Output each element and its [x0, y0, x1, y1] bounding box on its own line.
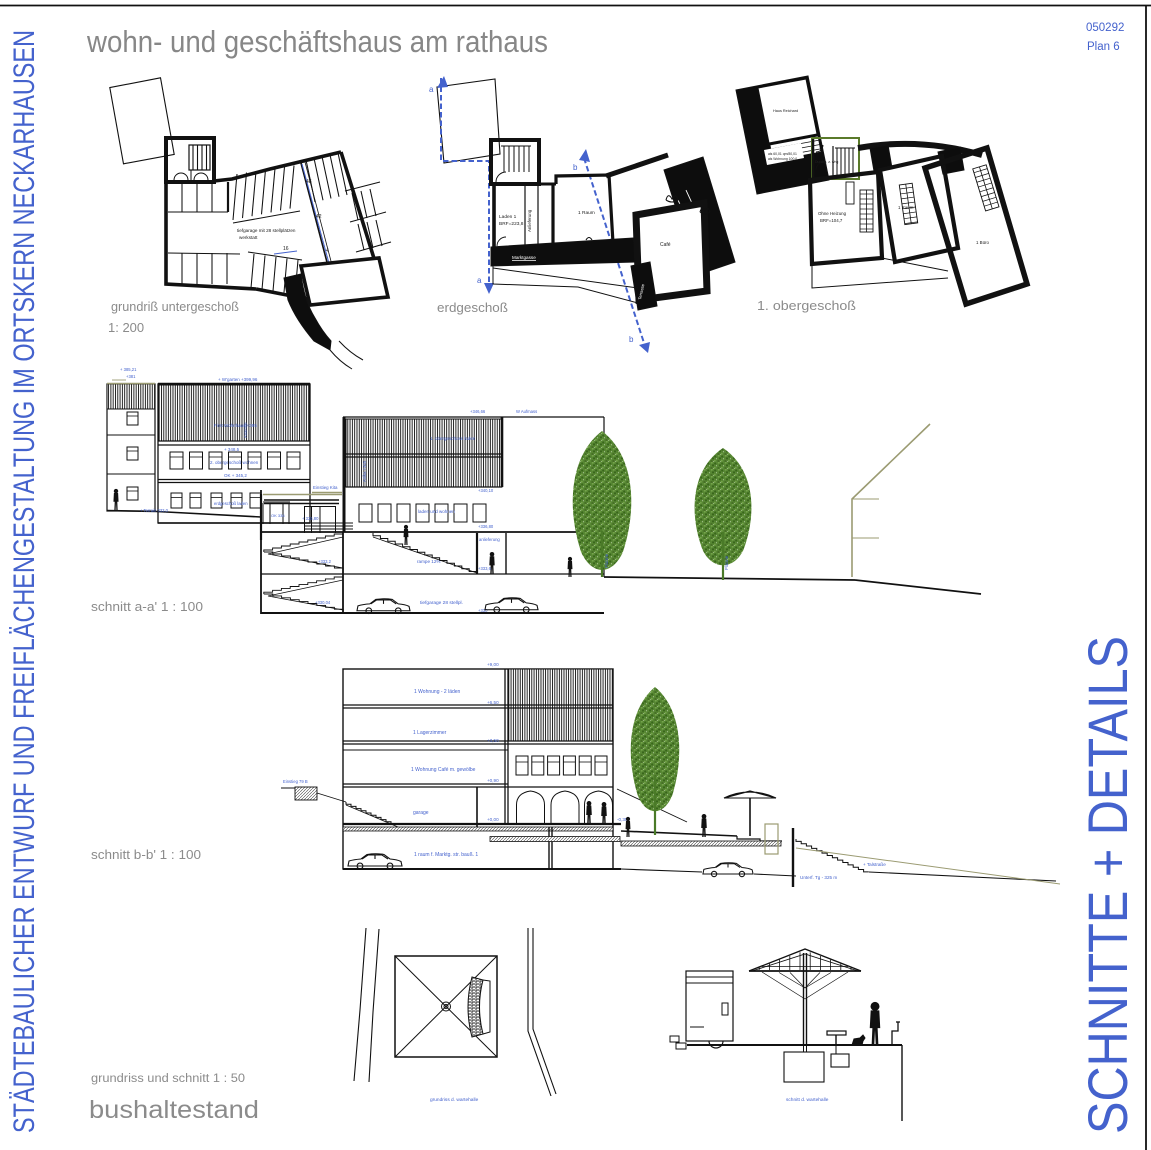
svg-text:OK 336: OK 336	[271, 513, 285, 518]
svg-text:+3,50: +3,50	[487, 738, 499, 743]
svg-text:b: b	[629, 335, 634, 344]
svg-text:BRF=223,8: BRF=223,8	[499, 221, 524, 227]
svg-text:Ohne Heizung: Ohne Heizung	[818, 211, 847, 216]
svg-text:+346,66: +346,66	[470, 409, 486, 414]
svg-text:tiefgarage mit 28 stellplätzen: tiefgarage mit 28 stellplätzen	[237, 228, 296, 233]
svg-text:STÄDTEBAULICHER ENTWURF UND FR: STÄDTEBAULICHER ENTWURF UND FREIFLÄCHENG…	[8, 30, 41, 1133]
svg-text:050292: 050292	[1086, 22, 1124, 34]
svg-text:OK + 345,2: OK + 345,2	[224, 473, 247, 478]
svg-text:wohn- und geschäftshaus am rat: wohn- und geschäftshaus am rathaus	[86, 24, 548, 59]
svg-text:W Aufmass: W Aufmass	[516, 409, 537, 414]
svg-text:als 60,01 qm/80,01: als 60,01 qm/80,01	[768, 152, 797, 156]
svg-text:Durchg. z. whg: Durchg. z. whg	[815, 160, 838, 164]
svg-text:anlieferung: anlieferung	[479, 537, 500, 542]
svg-text:als Wohnung 100,0: als Wohnung 100,0	[768, 157, 797, 161]
svg-text:+ Talstraße: + Talstraße	[863, 862, 886, 867]
svg-text:First Wohnhaus +395: First Wohnhaus +395	[214, 423, 257, 428]
svg-text:+ 385,21: + 385,21	[120, 367, 137, 372]
svg-text:Marktgasse: Marktgasse	[512, 255, 536, 260]
svg-text:b: b	[573, 163, 578, 172]
svg-text:1 raum f. Marktg. str. bauß. 1: 1 raum f. Marktg. str. bauß. 1	[414, 852, 478, 858]
svg-text:1: 200: 1: 200	[108, 320, 144, 335]
svg-text:BRF=104,7: BRF=104,7	[820, 218, 843, 223]
svg-text:Platane: Platane	[724, 555, 729, 570]
svg-text:1 Wohnung - 2 läden: 1 Wohnung - 2 läden	[414, 689, 461, 695]
svg-text:2. obergeschoß wohnen: 2. obergeschoß wohnen	[210, 460, 259, 465]
svg-text:grundriss d. wartehalle: grundriss d. wartehalle	[430, 1097, 479, 1103]
svg-text:Antenne: Antenne	[243, 422, 248, 438]
svg-text:grundriss und schnitt 1 : 50: grundriss und schnitt 1 : 50	[91, 1073, 245, 1085]
svg-text:a: a	[477, 276, 482, 285]
svg-text:schnitt a-a' 1 : 100: schnitt a-a' 1 : 100	[91, 600, 203, 614]
svg-text:1. obergeschoß: 1. obergeschoß	[757, 298, 856, 313]
svg-text:+ Terrain 333,0: + Terrain 333,0	[140, 508, 169, 513]
svg-text:+0,00: +0,00	[487, 817, 499, 822]
svg-text:4: 4	[326, 248, 329, 254]
svg-text:+340,10: +340,10	[478, 488, 494, 493]
svg-text:+330,04: +330,04	[315, 600, 331, 605]
svg-text:erdgeschoß laden: erdgeschoß laden	[214, 501, 248, 506]
svg-text:bushaltestand: bushaltestand	[89, 1096, 259, 1124]
svg-text:+9,00: +9,00	[487, 662, 499, 667]
svg-text:Plan 6: Plan 6	[1087, 41, 1120, 53]
svg-text:1 Büro: 1 Büro	[976, 240, 989, 245]
svg-text:+ W'garten +399,96: + W'garten +399,96	[218, 377, 258, 382]
svg-text:Laden 1: Laden 1	[499, 214, 517, 220]
svg-text:+ 348,5: + 348,5	[224, 447, 240, 452]
svg-text:Platane: Platane	[604, 553, 609, 568]
svg-text:16: 16	[283, 246, 289, 252]
svg-text:1. obergeschoss laden: 1. obergeschoss laden	[430, 436, 476, 441]
svg-text:+330: +330	[478, 608, 488, 613]
svg-text:+333,6: +333,6	[478, 566, 492, 571]
svg-text:1 Raum: 1 Raum	[578, 210, 595, 216]
svg-text:grundriß untergeschoß: grundriß untergeschoß	[111, 299, 239, 314]
svg-text:+ 336,80: + 336,80	[302, 516, 319, 521]
svg-text:+381: +381	[126, 374, 136, 379]
svg-text:Haus Reichard: Haus Reichard	[773, 109, 798, 113]
svg-text:+6,50: +6,50	[487, 700, 499, 705]
svg-text:Einstieg Kita: Einstieg Kita	[313, 485, 338, 490]
svg-text:schnitt d. wartehalle: schnitt d. wartehalle	[786, 1097, 829, 1103]
svg-text:garage: garage	[413, 810, 429, 816]
svg-text:Einstieg 79 B: Einstieg 79 B	[283, 779, 308, 784]
svg-text:Café: Café	[660, 242, 671, 248]
svg-text:a: a	[429, 85, 434, 94]
svg-text:48: 48	[306, 179, 312, 185]
svg-text:Unterf. Tg - 325 m: Unterf. Tg - 325 m	[800, 875, 837, 880]
svg-text:SCHNITTE + DETAILS: SCHNITTE + DETAILS	[1076, 636, 1139, 1134]
svg-text:tiefgarage 28 stellpl.: tiefgarage 28 stellpl.	[420, 600, 463, 606]
svg-text:+336,80: +336,80	[478, 524, 494, 529]
svg-text:+0,90: +0,90	[487, 778, 499, 783]
svg-text:schnitt b-b' 1 : 100: schnitt b-b' 1 : 100	[91, 848, 201, 862]
svg-text:42: 42	[316, 214, 322, 220]
svg-text:werkstatt: werkstatt	[239, 235, 258, 240]
svg-text:rampe 12%: rampe 12%	[417, 559, 441, 564]
svg-text:1 Lagerzimmer: 1 Lagerzimmer	[413, 730, 447, 736]
svg-text:Anlieferung: Anlieferung	[527, 209, 532, 232]
svg-text:+333,2: +333,2	[318, 559, 332, 564]
svg-text:erdgeschoß: erdgeschoß	[437, 300, 508, 315]
svg-text:laden und wohnen: laden und wohnen	[418, 509, 455, 514]
svg-text:1 Wohnung Café m. gewölbe: 1 Wohnung Café m. gewölbe	[411, 767, 476, 773]
svg-text:Attika +345: Attika +345	[362, 460, 367, 482]
